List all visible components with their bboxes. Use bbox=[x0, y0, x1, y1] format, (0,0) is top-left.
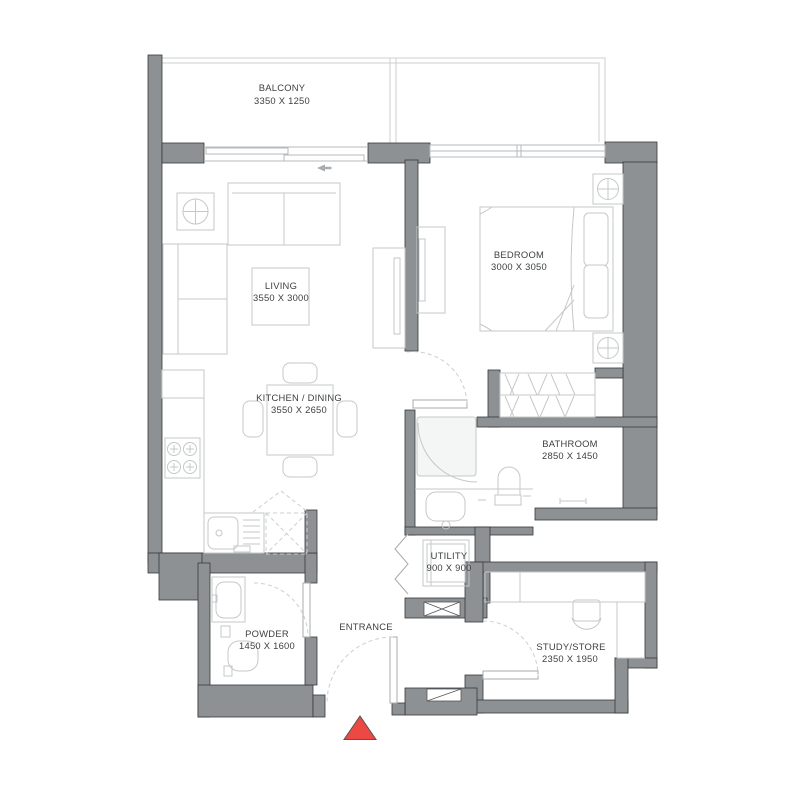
study-door-leaf bbox=[483, 671, 538, 679]
bathroom-sink bbox=[426, 492, 465, 521]
wall-segment bbox=[162, 143, 204, 163]
dining-chair bbox=[243, 401, 263, 437]
bedroom-furniture bbox=[417, 174, 623, 417]
bedroom-window bbox=[430, 145, 605, 157]
tv-unit-bedroom bbox=[417, 227, 445, 313]
wall-segment bbox=[477, 417, 657, 427]
tv-screen bbox=[419, 239, 425, 301]
room-dims-powder: 1450 X 1600 bbox=[239, 640, 295, 651]
wall-segment bbox=[405, 527, 533, 535]
room-dims-kitchen: 3550 X 2650 bbox=[271, 404, 327, 415]
room-label-entrance: ENTRANCE bbox=[339, 621, 393, 632]
wall-segment bbox=[595, 368, 623, 378]
appliance-cross bbox=[266, 513, 307, 554]
kitchen-cabinet bbox=[162, 370, 204, 398]
bedroom-door-leaf bbox=[413, 400, 467, 408]
wall-segment bbox=[148, 55, 162, 563]
room-dims-study: 2350 X 1950 bbox=[542, 653, 598, 664]
dining-chair bbox=[283, 363, 317, 383]
chaise-cushion-lines bbox=[178, 244, 227, 354]
pillow bbox=[584, 213, 608, 266]
bed-sheet-fold bbox=[571, 207, 574, 331]
wall-segment bbox=[405, 160, 418, 351]
slider-panel bbox=[206, 148, 288, 154]
dining-chair bbox=[337, 401, 357, 437]
entrance-door-leaf bbox=[390, 637, 397, 703]
living-furniture bbox=[163, 183, 405, 354]
balcony-outline bbox=[162, 58, 605, 143]
room-label-utility: UTILITY bbox=[431, 550, 468, 561]
floor-plan: BALCONY 3350 X 1250 LIVING 3550 X 3000 B… bbox=[0, 0, 800, 800]
tv-screen bbox=[394, 258, 400, 334]
wall-segment bbox=[465, 562, 657, 572]
powder-fixtures bbox=[212, 577, 310, 676]
bedroom-door-swing bbox=[407, 352, 467, 404]
wall-segment bbox=[405, 410, 415, 535]
wall-segment bbox=[465, 700, 628, 713]
burner-cross bbox=[170, 445, 194, 471]
room-dims-balcony: 3350 X 1250 bbox=[254, 95, 310, 106]
wall-segment bbox=[392, 703, 405, 715]
toilet-tank bbox=[495, 495, 521, 505]
wall-segment bbox=[313, 695, 325, 717]
bifold-door bbox=[395, 534, 408, 594]
room-dims-utility: 900 X 900 bbox=[427, 562, 472, 573]
floor-plan-drawing: BALCONY 3350 X 1250 LIVING 3550 X 3000 B… bbox=[0, 0, 800, 800]
slide-direction-arrow bbox=[317, 165, 332, 172]
wall-segment bbox=[198, 685, 313, 717]
entrance-door-swing bbox=[327, 637, 393, 703]
room-dims-bedroom: 3000 X 3050 bbox=[491, 261, 547, 272]
desk bbox=[485, 572, 645, 602]
entrance bbox=[327, 637, 397, 740]
wall-segment bbox=[615, 658, 628, 713]
dining-chair bbox=[283, 457, 317, 477]
shower bbox=[417, 417, 476, 476]
balcony-edge-inner bbox=[162, 63, 599, 142]
room-label-balcony: BALCONY bbox=[259, 82, 306, 93]
wall-segment bbox=[368, 143, 430, 163]
wall-segment bbox=[305, 553, 317, 583]
desk-chair bbox=[573, 600, 600, 621]
powder-sink bbox=[216, 582, 241, 618]
wall-segment bbox=[305, 637, 317, 685]
room-label-bedroom: BEDROOM bbox=[494, 249, 544, 260]
bathroom-accessories bbox=[478, 496, 586, 504]
wall-segment bbox=[159, 553, 202, 600]
room-label-study: STUDY/STORE bbox=[536, 641, 605, 652]
powder-door-leaf bbox=[303, 583, 310, 637]
sofa-cushion-lines bbox=[232, 193, 336, 245]
room-label-powder: POWDER bbox=[245, 628, 289, 639]
wall-segment bbox=[623, 162, 657, 515]
room-dims-bathroom: 2850 X 1450 bbox=[542, 450, 598, 461]
toilet-bowl bbox=[498, 467, 520, 495]
room-dims-living: 3550 X 3000 bbox=[253, 292, 309, 303]
bedroom-door bbox=[407, 352, 467, 408]
wall-segment bbox=[645, 562, 657, 668]
powder-cistern bbox=[221, 626, 230, 637]
wall-segment bbox=[605, 142, 657, 163]
room-label-living: LIVING bbox=[265, 280, 297, 291]
fridge-swing bbox=[253, 491, 308, 512]
entrance-marker-icon bbox=[344, 716, 376, 740]
room-label-kitchen: KITCHEN / DINING bbox=[256, 392, 342, 403]
room-label-bathroom: BATHROOM bbox=[542, 438, 597, 449]
study-door-swing bbox=[483, 621, 538, 676]
chair-backrest bbox=[572, 618, 601, 629]
pillow bbox=[584, 265, 608, 318]
wall-segment bbox=[535, 508, 657, 520]
balcony-edge bbox=[162, 58, 605, 142]
slider-panel bbox=[284, 155, 364, 161]
balcony-sliding-door bbox=[204, 147, 368, 172]
bed-drape-lines bbox=[545, 285, 574, 331]
